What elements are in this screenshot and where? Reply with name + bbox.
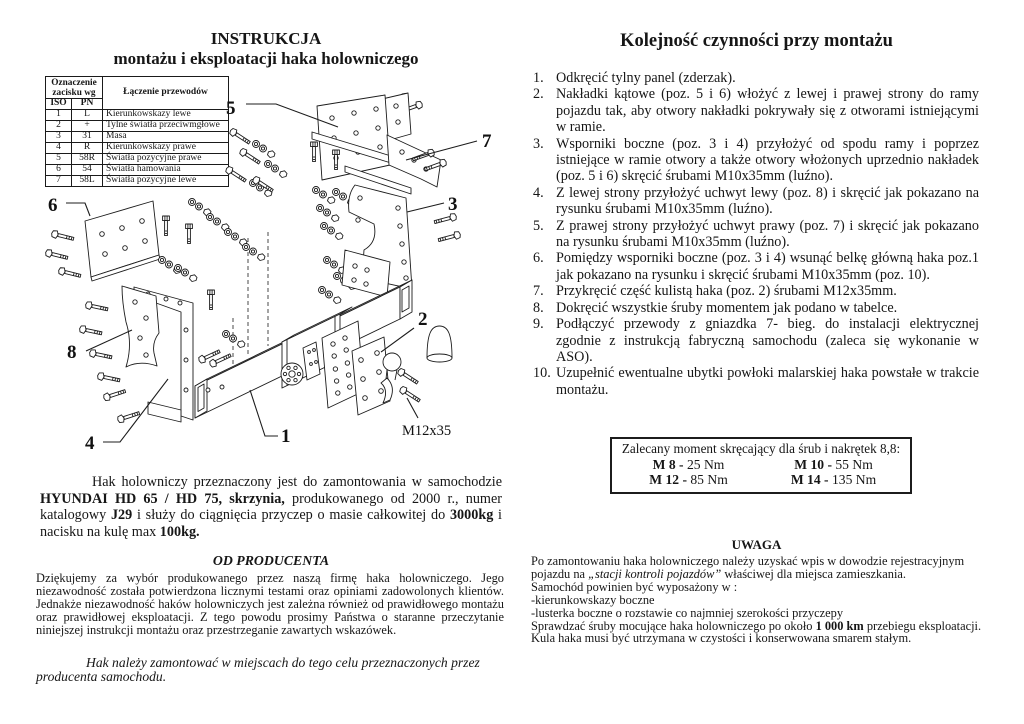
step-text: Dokręcić wszystkie śruby momentem jak po… (556, 300, 979, 316)
diagram-collar-and-end-plate (281, 287, 364, 409)
text-segment: -lusterka boczne o rozstawie co najmniej… (531, 606, 843, 620)
diagram-part-3-support (313, 166, 462, 297)
step-text: Nakładki kątowe (poz. 5 i 6) włożyć z le… (556, 86, 979, 135)
torque-label: M 12 - (649, 472, 687, 487)
assembly-step: 10.Uzupełnić ewentualne ubytki powłoki m… (533, 365, 979, 398)
step-number: 5. (533, 218, 556, 251)
diagram-ball-cover (427, 326, 452, 362)
uwaga-body: Po zamontowaniu haka holowniczego należy… (531, 555, 985, 645)
assembly-step: 6.Pomiędzy wsporniki boczne (poz. 3 i 4)… (533, 250, 979, 283)
text-segment: Samochód powinien być wyposażony w : (531, 580, 737, 594)
text-segment: 3000kg (450, 507, 493, 523)
diagram-part-6-plate (45, 201, 193, 281)
text-segment: „stacji kontroli pojazdów” (588, 567, 721, 581)
assembly-step: 7.Przykręcić część kulistą haka (poz. 2)… (533, 283, 979, 299)
left-title-block: INSTRUKCJA montażu i eksploatacji haka h… (40, 29, 492, 69)
assembly-step: 1.Odkręcić tylny panel (zderzak). (533, 70, 979, 86)
text-segment: przebiegu eksploatacji. (864, 619, 981, 633)
step-number: 9. (533, 316, 556, 365)
assembly-step: 5.Z prawej strony przyłożyć uchwyt prawy… (533, 218, 979, 251)
part-label-1: 1 (281, 426, 291, 447)
part-label-7: 7 (482, 131, 492, 152)
step-text: Z prawej strony przyłożyć uchwyt prawy (… (556, 218, 979, 251)
part-label-4: 4 (85, 433, 95, 454)
text-segment: i służy do ciągnięcia przyczep o masie c… (132, 507, 450, 523)
diagram-part-7-bracket (387, 135, 447, 187)
part-label-2: 2 (418, 309, 428, 330)
torque-label: M 8 - (653, 457, 684, 472)
producer-heading: OD PRODUCENTA (40, 553, 502, 569)
torque-label: M 10 - (794, 457, 832, 472)
torque-box: Zalecany moment skręcający dla śrub i na… (610, 437, 912, 494)
part-label-6: 6 (48, 195, 58, 216)
step-number: 3. (533, 136, 556, 185)
intro-paragraph: Hak holowniczy przeznaczony jest do zamo… (40, 474, 502, 540)
uwaga-heading: UWAGA (533, 537, 980, 553)
assembly-step: 9.Podłączyć przewody z gniazdka 7- bieg.… (533, 316, 979, 365)
text-segment: J29 (111, 507, 132, 523)
step-number: 10. (533, 365, 556, 398)
step-number: 4. (533, 185, 556, 218)
step-number: 2. (533, 86, 556, 135)
diagram-part-2-ball (352, 337, 421, 415)
torque-entry: M 10 - 55 Nm (761, 457, 906, 473)
bolt-size-label: M12x35 (402, 423, 451, 439)
producer-body: Dziękujemy za wybór produkowanego przez … (36, 572, 504, 637)
step-number: 6. (533, 250, 556, 283)
part-label-8: 8 (67, 342, 77, 363)
page-subtitle: montażu i eksploatacji haka holowniczego (40, 49, 492, 69)
text-segment: Hak holowniczy przeznaczony jest do zamo… (92, 474, 502, 490)
step-text: Przykręcić część kulistą haka (poz. 2) ś… (556, 283, 979, 299)
torque-entry: M 14 - 135 Nm (761, 472, 906, 488)
assembly-step: 8.Dokręcić wszystkie śruby momentem jak … (533, 300, 979, 316)
tow-ball (383, 353, 401, 371)
text-segment: Kula haka musi być utrzymana w czystości… (531, 631, 911, 645)
step-text: Pomiędzy wsporniki boczne (poz. 3 i 4) w… (556, 250, 979, 283)
torque-label: M 14 - (791, 472, 829, 487)
torque-entry: M 8 - 25 Nm (616, 457, 761, 473)
assembly-step: 2.Nakładki kątowe (poz. 5 i 6) włożyć z … (533, 86, 979, 135)
instruction-page: INSTRUKCJA montażu i eksploatacji haka h… (0, 0, 1024, 724)
assembly-diagram: 5 7 3 6 8 4 1 2 M12x35 (40, 90, 520, 464)
assembly-step: 4.Z lewej strony przyłożyć uchwyt lewy (… (533, 185, 979, 218)
step-text: Podłączyć przewody z gniazdka 7- bieg. d… (556, 316, 979, 365)
text-segment: właściwej dla miejsca zamieszkania. (721, 567, 906, 581)
assembly-step: 3.Wsporniki boczne (poz. 3 i 4) przyłoży… (533, 136, 979, 185)
step-text: Uzupełnić ewentualne ubytki powłoki mala… (556, 365, 979, 398)
right-title: Kolejność czynności przy montażu (533, 31, 980, 52)
text-segment: Sprawdzać śruby mocujące haka holownicze… (531, 619, 816, 633)
page-title: INSTRUKCJA (40, 29, 492, 49)
assembly-steps-list: 1.Odkręcić tylny panel (zderzak).2.Nakła… (533, 70, 979, 398)
text-segment: 100kg. (160, 524, 200, 540)
diagram-part-8-bracket (79, 286, 159, 384)
part-label-5: 5 (226, 98, 236, 119)
part-label-3: 3 (448, 194, 458, 215)
text-segment: 1 000 km (816, 619, 864, 633)
uwaga-line: Po zamontowaniu haka holowniczego należy… (531, 555, 985, 581)
step-number: 8. (533, 300, 556, 316)
step-text: Odkręcić tylny panel (zderzak). (556, 70, 979, 86)
text-segment: -kierunkowskazy boczne (531, 593, 655, 607)
step-number: 7. (533, 283, 556, 299)
uwaga-line: Kula haka musi być utrzymana w czystości… (531, 632, 985, 645)
producer-note: Hak należy zamontować w miejscach do teg… (36, 656, 502, 684)
torque-box-title: Zalecany moment skręcający dla śrub i na… (616, 441, 906, 457)
step-text: Wsporniki boczne (poz. 3 i 4) przyłożyć … (556, 136, 979, 185)
torque-grid: M 8 - 25 NmM 10 - 55 NmM 12 - 85 NmM 14 … (616, 457, 906, 488)
diagram-hardware-bolts (189, 127, 288, 260)
step-number: 1. (533, 70, 556, 86)
step-text: Z lewej strony przyłożyć uchwyt lewy (po… (556, 185, 979, 218)
torque-entry: M 12 - 85 Nm (616, 472, 761, 488)
text-segment: HYUNDAI HD 65 / HD 75, skrzynia, (40, 491, 285, 507)
